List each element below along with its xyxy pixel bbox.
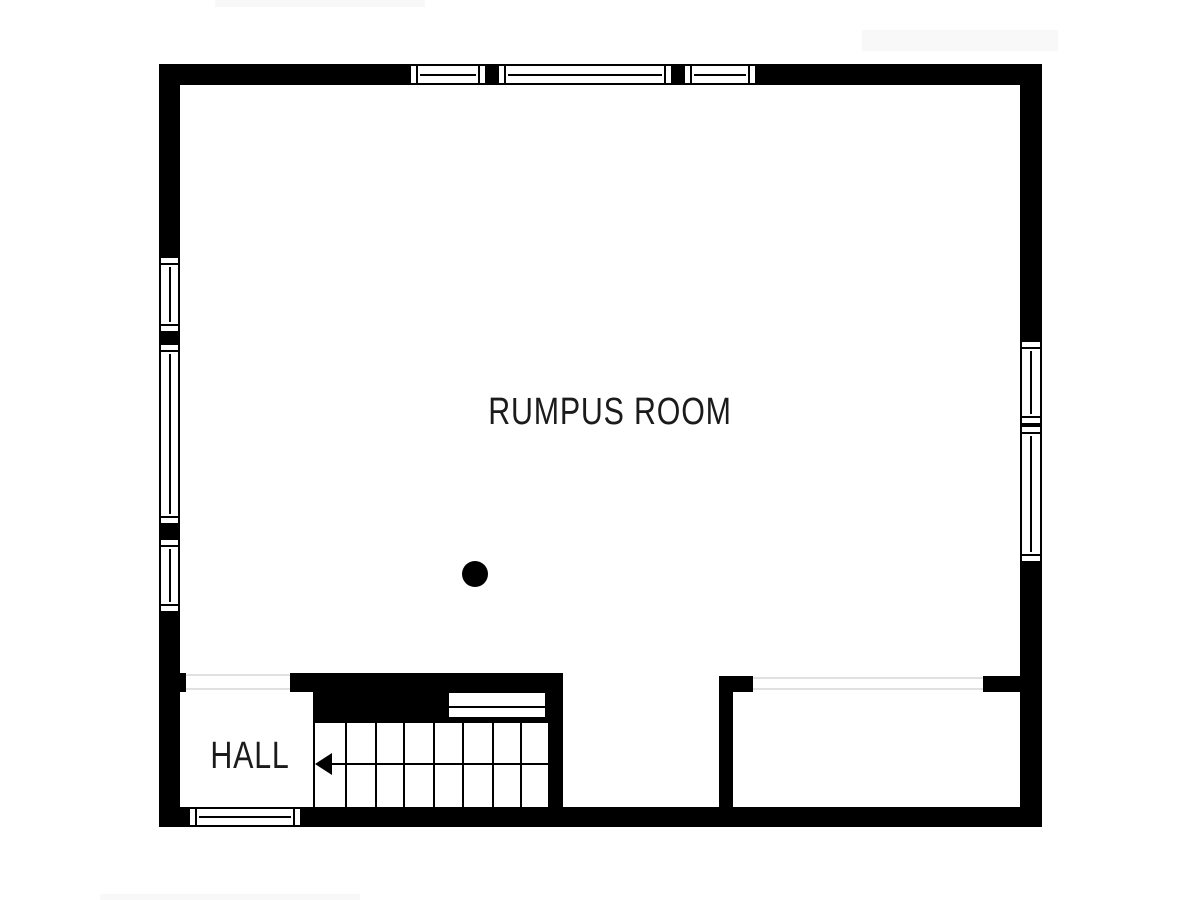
- watermark-artifact: [100, 894, 360, 900]
- window-left-3: [159, 538, 180, 613]
- stair-tread-line: [520, 723, 522, 807]
- stair-tread-line: [375, 723, 377, 807]
- window-frame-cap: [1022, 416, 1040, 423]
- window-frame-cap: [478, 66, 485, 83]
- right-room-doorway-jamb-left: [733, 676, 753, 692]
- window-right-2: [1020, 425, 1042, 563]
- stair-landing-step-line: [449, 706, 545, 708]
- hall-label: HALL: [170, 736, 330, 776]
- top-wall-right-segment: [757, 64, 1042, 85]
- right-wall-upper-segment: [1020, 64, 1042, 340]
- top-wall-left-segment: [159, 64, 409, 85]
- window-frame-cap: [1022, 342, 1040, 349]
- window-frame-cap: [499, 66, 506, 83]
- window-top-1: [409, 64, 487, 85]
- window-frame-cap: [411, 66, 418, 83]
- stair-tread-line: [462, 723, 464, 807]
- window-glass-line: [1030, 436, 1032, 552]
- stair-head-wall-mass: [313, 692, 447, 720]
- right-room-opening-line-bottom: [753, 688, 983, 690]
- window-frame-cap: [748, 66, 755, 83]
- hall-opening-line-bottom: [186, 688, 290, 690]
- left-wall-window-mullion-2: [159, 525, 180, 538]
- right-wall-lower-segment: [1020, 563, 1042, 827]
- window-frame-cap: [161, 345, 178, 352]
- window-frame-cap: [1022, 427, 1040, 434]
- window-glass-line: [169, 267, 171, 322]
- stair-enclosure-right-wall: [548, 673, 563, 807]
- window-frame-cap: [1022, 554, 1040, 561]
- window-frame-cap: [664, 66, 671, 83]
- window-glass-line: [420, 74, 476, 76]
- rumpus-room-label: RUMPUS ROOM: [450, 392, 770, 432]
- window-top-2: [497, 64, 673, 85]
- window-frame-cap: [161, 258, 178, 265]
- right-room-opening-line-top: [753, 677, 983, 679]
- hall-opening-line-top: [186, 674, 290, 676]
- window-frame-cap: [161, 604, 178, 611]
- stair-tread-line: [345, 723, 347, 807]
- window-frame-cap: [190, 809, 197, 825]
- window-glass-line: [694, 74, 746, 76]
- window-glass-line: [169, 549, 171, 602]
- top-wall-window-mullion-2: [673, 64, 683, 85]
- stair-tread-line: [403, 723, 405, 807]
- bottom-wall-right-segment: [302, 807, 1042, 827]
- window-frame-cap: [685, 66, 692, 83]
- watermark-artifact: [215, 0, 425, 7]
- top-wall-window-mullion-1: [487, 64, 497, 85]
- stair-landing-steps: [446, 690, 548, 720]
- window-frame-cap: [293, 809, 300, 825]
- right-room-doorway-jamb-right: [983, 676, 1020, 692]
- stair-direction-line: [330, 763, 548, 765]
- window-left-1: [159, 256, 180, 333]
- window-glass-line: [508, 74, 662, 76]
- left-wall-window-mullion-1: [159, 333, 180, 343]
- window-top-3: [683, 64, 757, 85]
- window-glass-line: [169, 354, 171, 514]
- window-right-1: [1020, 340, 1042, 425]
- window-glass-line: [1030, 351, 1032, 414]
- floor-plan: RUMPUS ROOM HALL: [0, 0, 1200, 900]
- structural-post-dot: [462, 561, 488, 587]
- stair-tread-line: [492, 723, 494, 807]
- window-glass-line: [199, 816, 291, 818]
- window-left-2: [159, 343, 180, 525]
- interior-wall-right-room: [719, 676, 733, 808]
- bottom-wall-left-segment: [159, 807, 188, 827]
- stair-tread-line: [433, 723, 435, 807]
- left-wall-upper-segment: [159, 64, 180, 256]
- window-frame-cap: [161, 516, 178, 523]
- window-frame-cap: [161, 540, 178, 547]
- watermark-artifact: [862, 30, 1058, 51]
- left-wall-lower-segment: [159, 613, 180, 827]
- window-frame-cap: [161, 324, 178, 331]
- window-bottom-hall: [188, 807, 302, 827]
